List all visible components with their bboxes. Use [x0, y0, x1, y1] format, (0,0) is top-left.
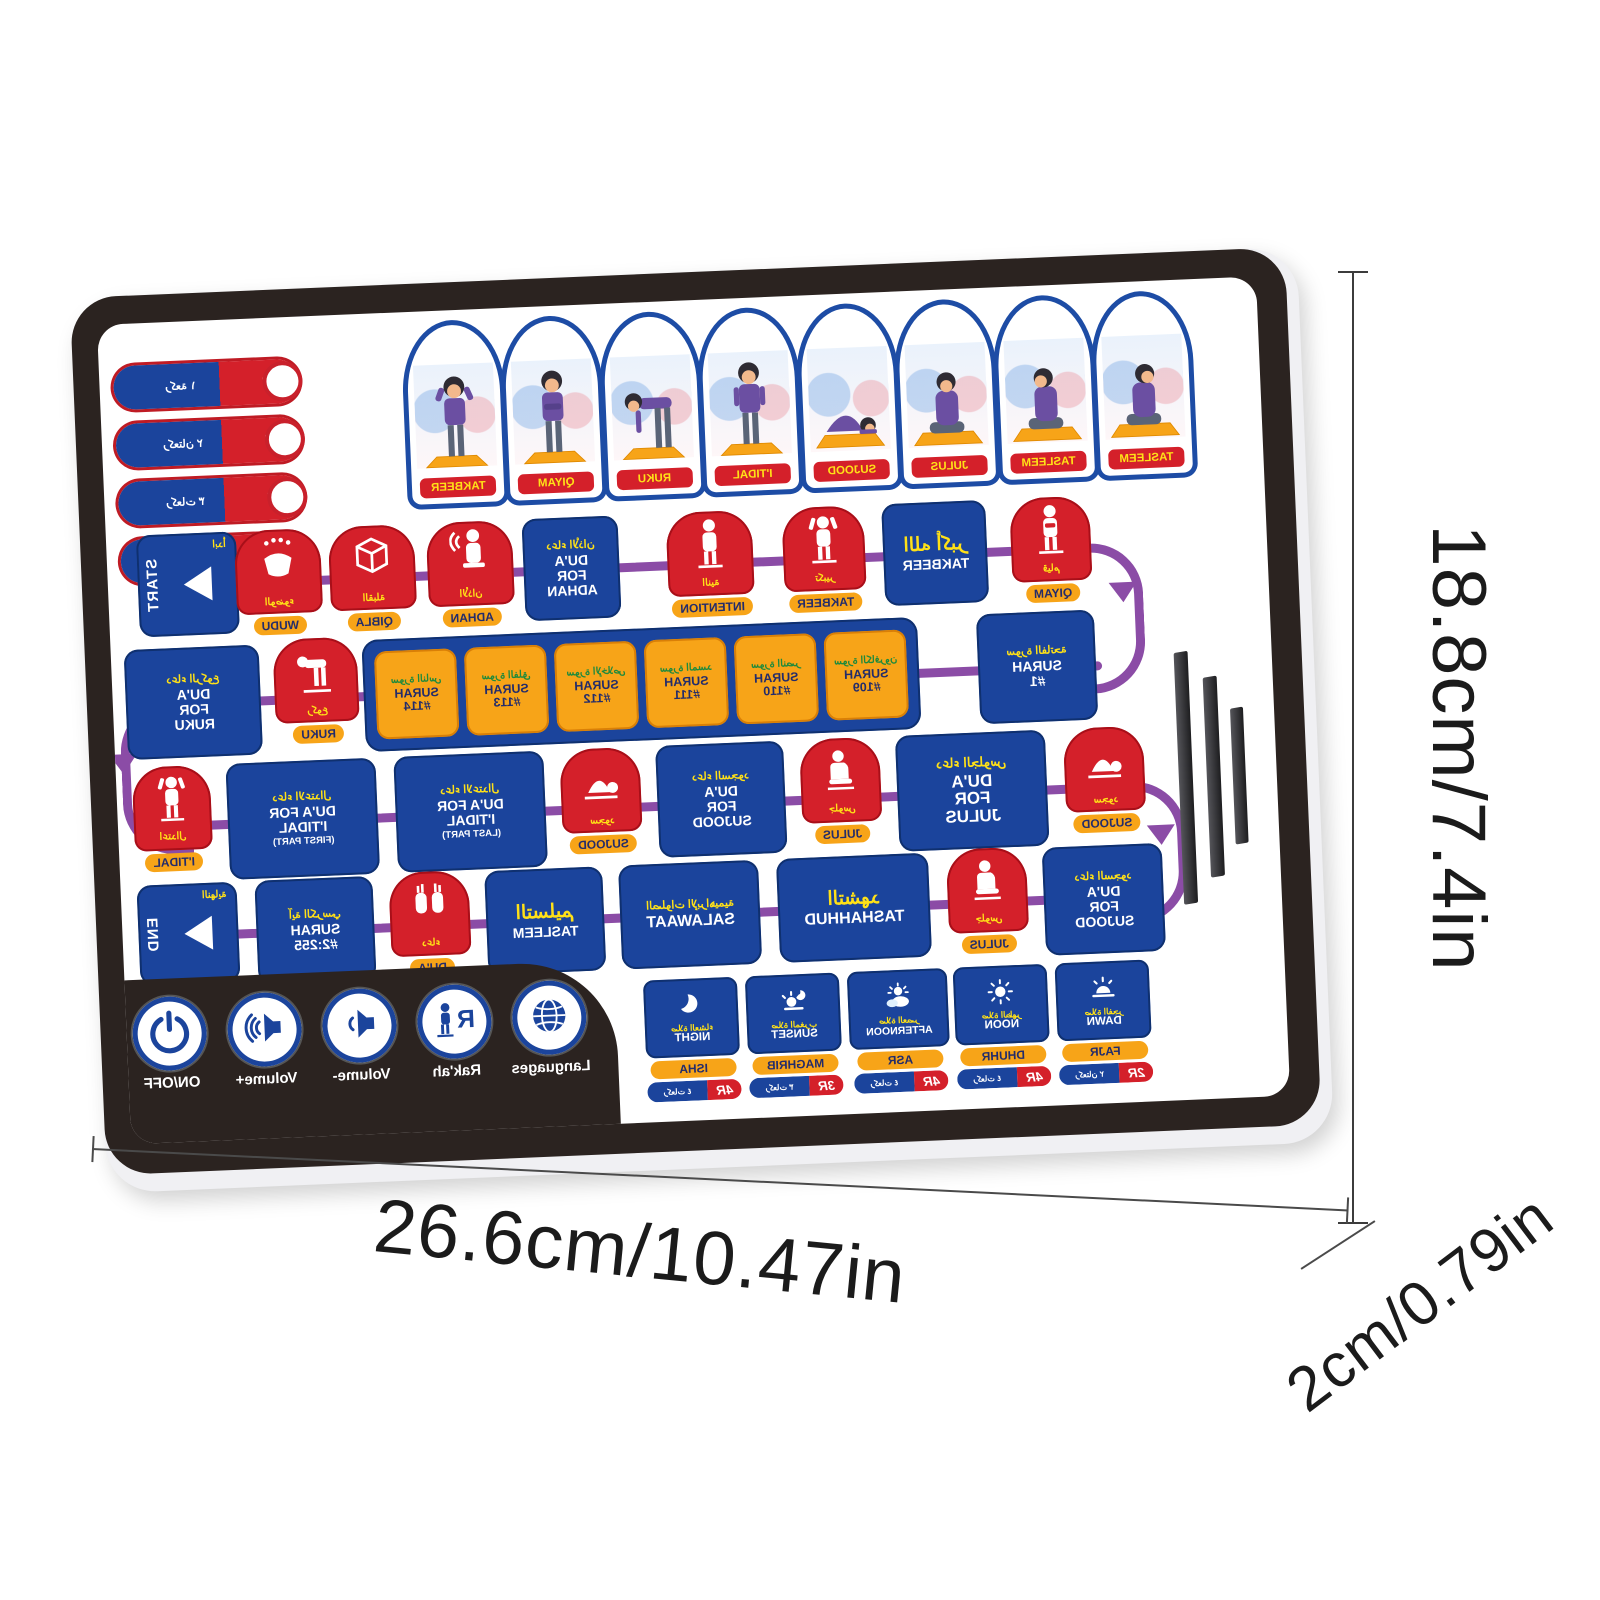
rakah-count: 3R: [818, 1078, 835, 1094]
dua-for-adhan-button[interactable]: دعاء الأذان DU'A FOR ADHAN: [521, 515, 621, 621]
dua-itidal-sub: (FIRST PART): [273, 835, 335, 849]
standing-person-icon: [1030, 504, 1070, 562]
dua-itidal-label: DU'A FOR I'TIDAL: [265, 803, 340, 835]
adhan-label: ADHAN: [442, 607, 502, 628]
power-label: ON/OFF: [143, 1073, 200, 1092]
control-band: ON/OFF Volume+ Volume- R Rak'ah: [97, 960, 622, 1144]
dua-julus-arabic: دعاء الجلوس: [936, 754, 1007, 771]
itidal-label: I'TIDAL: [145, 852, 203, 873]
prayer-dawn-button[interactable]: صلاة الفجر DAWN FAJR ركعتان ٢ 2R: [1055, 960, 1154, 1086]
dua-sujood-arabic: دعاء السجود: [1074, 869, 1131, 884]
play-icon: [184, 916, 213, 951]
arch-label: TASLEEM: [1119, 451, 1174, 465]
surah-1-label: SURAH #1: [1007, 658, 1068, 690]
rakah-toggle-1r[interactable]: ركعة ١ 1R: [113, 359, 301, 411]
arch-label: SUJOOD: [827, 464, 876, 478]
takbeer-arabic: تكبير: [815, 572, 835, 584]
rakah-arabic: ركعتان ٢: [1075, 1069, 1104, 1079]
dua-itidal-first-button[interactable]: دعاء الاعتدال DU'A FOR I'TIDAL (FIRST PA…: [225, 758, 380, 880]
prayer-rakah-pill: ركعات ٤ 4R: [854, 1070, 949, 1094]
surah-arabic: سورة النصر: [744, 658, 808, 671]
surah-arabic: سورة الإخلاص: [564, 666, 628, 679]
kaaba-icon: [351, 531, 393, 592]
surah-label: SURAH #110: [748, 671, 805, 700]
toggle-arabic: ركعتان ٢: [116, 434, 250, 453]
toggle-knob[interactable]: [264, 418, 306, 460]
standing-person-icon: [690, 518, 730, 576]
prayer-time-label: FAJR: [1062, 1041, 1149, 1063]
prostration-icon: [1083, 732, 1125, 793]
dua-sujood-label: DU'A FOR SUJOOD: [688, 783, 756, 830]
child-ruku-illustration: [611, 356, 693, 468]
prayer-time-label: MAGHRIB: [752, 1054, 839, 1076]
surah-111-button[interactable]: سورة المسدSURAH #111: [644, 637, 730, 728]
speaker-grille-bar: [1230, 707, 1249, 845]
surah-label: SURAH #109: [838, 667, 895, 696]
power-icon: [147, 1008, 193, 1059]
child-qiyam-illustration: [512, 360, 594, 472]
rakah-count: 4R: [923, 1073, 940, 1089]
sunset-icon: [778, 985, 807, 1019]
arch-pose-sujood: SUJOOD: [794, 302, 904, 494]
hand-wash-icon: [257, 535, 299, 596]
child-tasleem-illustration: [1102, 336, 1184, 448]
volume-down-label: Volume-: [332, 1065, 391, 1084]
arch-pose-julus: JULUS: [892, 297, 1002, 489]
rakah-count: 4R: [716, 1082, 733, 1098]
dimension-cap: [1338, 1222, 1368, 1224]
moon-icon: [677, 991, 704, 1023]
julus-button[interactable]: جلوس JULUS: [799, 737, 883, 846]
dua-for-sujood-button-2[interactable]: دعاء السجود DU'A FOR SUJOOD: [1042, 843, 1166, 956]
dua-itidal-label: DU'A FOR I'TIDAL: [433, 796, 508, 828]
dua-sujood-arabic: دعاء السجود: [692, 769, 749, 784]
salawaat-button[interactable]: الصلوات الإبراهيمية SALAWAAT: [618, 860, 762, 970]
arms-raised-icon: [803, 513, 843, 571]
ruku-arabic: ركوع: [307, 705, 328, 717]
prostration-icon: [579, 753, 621, 814]
tasleem-label: TASLEEM: [513, 923, 579, 940]
surah-2-255-label: SURAH #2:255: [280, 921, 351, 953]
wudu-label: WUDU: [254, 615, 308, 636]
surah-1-button[interactable]: سورة الفاتحة SURAH #1: [976, 609, 1099, 724]
qibla-button[interactable]: القبلة QIBLA: [328, 524, 418, 633]
rakah-arabic: ركعات ٤: [663, 1087, 691, 1097]
rakah-arabic: ركعات ٣: [765, 1082, 793, 1092]
start-button[interactable]: START ابدأ: [136, 531, 240, 637]
start-arabic: ابدأ: [212, 539, 226, 551]
end-arabic: النهاية: [202, 889, 227, 901]
rakah-button[interactable]: R Rak'ah: [410, 983, 500, 1082]
rakah-count: 2R: [1128, 1065, 1145, 1081]
toggle-knob[interactable]: [262, 360, 304, 402]
prayer-time-label: ISHA: [650, 1058, 737, 1080]
child-julus-illustration: [906, 344, 988, 456]
volume-up-label: Volume+: [235, 1069, 297, 1089]
takbeer-recite-label: TAKBEER: [902, 555, 969, 572]
julus-label: JULUS: [815, 824, 871, 845]
dua-adhan-label: DU'A FOR ADHAN: [542, 552, 602, 598]
prayer-name: NIGHT: [674, 1032, 710, 1045]
qiyam-button[interactable]: قيام QIYAM: [1009, 496, 1093, 605]
depth-dimension-line: [1301, 1220, 1376, 1270]
arch-label: TASLEEM: [1021, 455, 1076, 469]
dua-for-ruku-button[interactable]: دعاء الركوع DU'A FOR RUKU: [124, 645, 263, 761]
adhan-button[interactable]: الأذان ADHAN: [426, 520, 516, 629]
wudu-arabic: الوضوء: [265, 596, 295, 608]
dua-button[interactable]: دعاء DU'A: [388, 870, 472, 979]
raised-hands-icon: [409, 878, 449, 936]
surah-109-button[interactable]: سورة الكافرونSURAH #109: [823, 629, 909, 720]
dua-for-sujood-button[interactable]: دعاء السجود DU'A FOR SUJOOD: [655, 741, 788, 858]
rakah-toggle-3r[interactable]: ركعات ٣ 3R: [118, 474, 306, 526]
itidal-button[interactable]: اعتدال I'TIDAL: [132, 765, 214, 874]
prayer-rakah-pill: ركعتان ٢ 2R: [1059, 1062, 1154, 1086]
volume-down-icon: [336, 1000, 382, 1051]
dimension-cap: [1338, 271, 1368, 273]
prayer-time-label: ASR: [857, 1049, 944, 1071]
surah-label: SURAH #112: [568, 678, 625, 707]
toggle-arabic: ركعة ١: [113, 376, 247, 395]
tasleem-arabic: التسليم: [515, 901, 574, 923]
languages-button[interactable]: Languages: [505, 979, 595, 1078]
globe-icon: [526, 992, 572, 1043]
rakah-person-icon: R: [431, 996, 477, 1047]
sitting-icon: [821, 746, 859, 802]
intention-label: INTENTION: [672, 597, 753, 619]
wudu-button[interactable]: الوضوء WUDU: [234, 528, 324, 637]
adhan-arabic: الأذان: [460, 588, 484, 600]
child-sujood-illustration: [808, 348, 890, 460]
sun-icon: [987, 978, 1014, 1010]
salawaat-label: SALAWAAT: [646, 912, 735, 932]
arch-pose-tasleem-left: TASLEEM: [1088, 289, 1198, 481]
caller-icon: [449, 526, 491, 587]
prayer-name: AFTERNOON: [866, 1024, 933, 1037]
surah-112-button[interactable]: سورة الإخلاصSURAH #112: [554, 641, 640, 732]
height-dimension-line: [1352, 272, 1354, 1224]
dua-itidal-sub: (LAST PART): [442, 828, 501, 841]
sujood-button-2[interactable]: سجود SUJOOD: [1063, 726, 1147, 835]
power-button[interactable]: ON/OFF: [125, 995, 215, 1094]
takbeer-big-arabic: الله أكبر: [903, 533, 967, 556]
arch-pose-takbeer: TAKBEER: [400, 318, 510, 510]
volume-up-button[interactable]: Volume+: [220, 991, 310, 1090]
dua-arabic: دعاء: [422, 937, 441, 949]
itidal-arabic: اعتدال: [160, 830, 187, 842]
arch-pose-itidal: I'TIDAL: [695, 306, 805, 498]
start-label: START: [143, 543, 164, 630]
arch-label: RUKU: [638, 472, 672, 485]
sunrise-icon: [1088, 972, 1117, 1006]
dua-ruku-label: DU'A FOR RUKU: [163, 686, 225, 733]
arch-label: TAKBEER: [430, 480, 485, 494]
prayer-sunset-button[interactable]: صلاة المغرب SUNSET MAGHRIB ركعات ٣ 3R: [745, 972, 844, 1098]
takbeer-pose-button[interactable]: تكبير TAKBEER: [781, 505, 867, 614]
cloud-sun-icon: [883, 981, 912, 1015]
sitting-icon: [968, 856, 1006, 912]
arms-raised-icon: [153, 774, 191, 830]
prayer-time-label: DHUHR: [960, 1045, 1047, 1067]
dua-ruku-arabic: دعاء الركوع: [166, 672, 219, 687]
prayer-name: NOON: [985, 1019, 1020, 1032]
arch-pose-tasleem-right: TASLEEM: [991, 293, 1101, 485]
svg-text:R: R: [456, 1004, 475, 1033]
prayer-rakah-pill: ركعات ٣ 3R: [749, 1075, 844, 1099]
ruku-button[interactable]: ركوع RUKU: [272, 636, 360, 745]
surah-arabic: سورة الناس: [384, 673, 448, 686]
rakah-arabic: ركعات ٤: [973, 1074, 1001, 1084]
prayer-rakah-pill: ركعات ٤ 4R: [957, 1066, 1052, 1090]
tasleem-button[interactable]: التسليم TASLEEM: [484, 866, 606, 975]
arch-label: I'TIDAL: [733, 468, 773, 482]
flow-arrow-1: [1109, 582, 1138, 603]
toggle-arabic: ركعات ٣: [118, 492, 252, 511]
surah-arabic: سورة المسد: [654, 662, 718, 675]
toggle-knob[interactable]: [266, 476, 308, 518]
surah-panel: سورة الناسSURAH #114 سورة الفلقSURAH #11…: [361, 617, 921, 752]
takbeer-label: TAKBEER: [789, 592, 863, 613]
julus-button-2[interactable]: جلوس JULUS: [946, 847, 1030, 956]
surah-label: SURAH #114: [388, 686, 445, 715]
volume-up-icon: [242, 1004, 288, 1055]
child-tasleem-illustration: [1004, 340, 1086, 452]
dua-itidal-arabic: دعاء الاعتدال: [440, 782, 500, 797]
rakah-label: Rak'ah: [432, 1062, 481, 1081]
takbeer-recite-button[interactable]: الله أكبر TAKBEER: [881, 500, 989, 606]
height-dimension-label: 18.8cm/7.4in: [1423, 448, 1493, 1048]
end-button[interactable]: END النهاية: [136, 882, 240, 986]
end-label: END: [143, 892, 164, 979]
surah-arabic: سورة الفلق: [474, 669, 538, 682]
prayer-rakah-pill: ركعات ٤ 4R: [647, 1079, 742, 1103]
surah-110-button[interactable]: سورة النصرSURAH #110: [734, 633, 820, 724]
prayer-night-button[interactable]: صلاة العشاء NIGHT ISHA ركعات ٤ 4R: [643, 977, 742, 1103]
sujood-button[interactable]: سجود SUJOOD: [559, 747, 643, 856]
depth-dimension-label: 2cm/0.79in: [1175, 1107, 1600, 1501]
arch-pose-ruku: RUKU: [597, 310, 707, 502]
child-takbeer-illustration: [414, 364, 496, 476]
prayer-noon-button[interactable]: صلاة الظهر NOON DHUHR ركعات ٤ 4R: [953, 964, 1052, 1090]
surah-113-button[interactable]: سورة الفلقSURAH #113: [464, 644, 550, 735]
surah-label: SURAH #111: [658, 675, 715, 704]
qiyam-label: QIYAM: [1026, 583, 1081, 604]
prayer-name: DAWN: [1086, 1016, 1122, 1029]
dua-julus-label: DU'A FOR JULUS: [934, 771, 1010, 828]
surah-2-255-button[interactable]: آية الكرسي SURAH #2:255: [254, 876, 376, 985]
dua-for-julus-button[interactable]: دعاء الجلوس DU'A FOR JULUS: [895, 730, 1050, 852]
arch-pose-qiyam: QIYAM: [498, 314, 608, 506]
qibla-label: QIBLA: [348, 612, 402, 633]
width-dimension-label: 26.6cm/10.47in: [248, 1170, 1033, 1333]
rakah-toggle-2r[interactable]: ركعتان ٢ 2R: [115, 417, 303, 469]
dua-itidal-last-button[interactable]: دعاء الاعتدال DU'A FOR I'TIDAL (LAST PAR…: [393, 751, 548, 873]
qibla-arabic: القبلة: [362, 592, 385, 604]
ayat-kursi-arabic: آية الكرسي: [289, 907, 341, 921]
dua-itidal-arabic: دعاء الاعتدال: [272, 789, 332, 804]
speaker-grille-bar: [1203, 676, 1225, 878]
prayer-name: SUNSET: [771, 1028, 818, 1041]
dua-sujood-label: DU'A FOR SUJOOD: [1071, 883, 1137, 930]
tashahhud-arabic: التشهد: [827, 887, 880, 909]
julus-label: JULUS: [962, 934, 1018, 955]
sujood-arabic: سجود: [590, 815, 615, 827]
sujood-label: SUJOOD: [1073, 813, 1140, 834]
tablet-panel: ركعة ١ 1R ركعتان ٢ 2R ركعات ٣ 3R ركعات ٤…: [97, 276, 1290, 1144]
ruku-label: RUKU: [293, 724, 344, 744]
surah-arabic: سورة الكافرون: [833, 654, 897, 667]
julus-arabic: جلوس: [975, 912, 1002, 924]
intention-button[interactable]: النية INTENTION: [665, 510, 755, 619]
surah-label: SURAH #113: [478, 682, 535, 711]
rakah-arabic: ركعات ٤: [870, 1078, 898, 1088]
volume-down-button[interactable]: Volume-: [315, 987, 405, 1086]
dua-adhan-arabic: دعاء الأذان: [546, 538, 595, 552]
arch-label: QIYAM: [537, 476, 574, 490]
play-icon: [183, 566, 212, 601]
sujood-label: SUJOOD: [569, 834, 636, 855]
bowing-icon: [294, 643, 336, 704]
tashahhud-button[interactable]: التشهد TASHAHHUD: [776, 853, 932, 963]
child-itidal-illustration: [709, 352, 791, 464]
tashahhud-label: TASHAHHUD: [804, 908, 905, 929]
intention-arabic: النية: [702, 577, 720, 589]
surah-114-button[interactable]: سورة الناسSURAH #114: [374, 648, 460, 739]
prayer-learning-tablet: ركعة ١ 1R ركعتان ٢ 2R ركعات ٣ 3R ركعات ٤…: [70, 247, 1334, 1194]
prayer-afternoon-button[interactable]: صلاة العصر AFTERNOON ASR ركعات ٤ 4R: [847, 968, 952, 1094]
rakah-count: 4R: [1026, 1069, 1043, 1085]
julus-arabic: جلوس: [828, 802, 855, 814]
languages-label: Languages: [511, 1057, 591, 1077]
arch-label: JULUS: [931, 460, 969, 474]
sujood-arabic: سجود: [1093, 794, 1118, 806]
qiyam-arabic: قيام: [1043, 563, 1060, 575]
